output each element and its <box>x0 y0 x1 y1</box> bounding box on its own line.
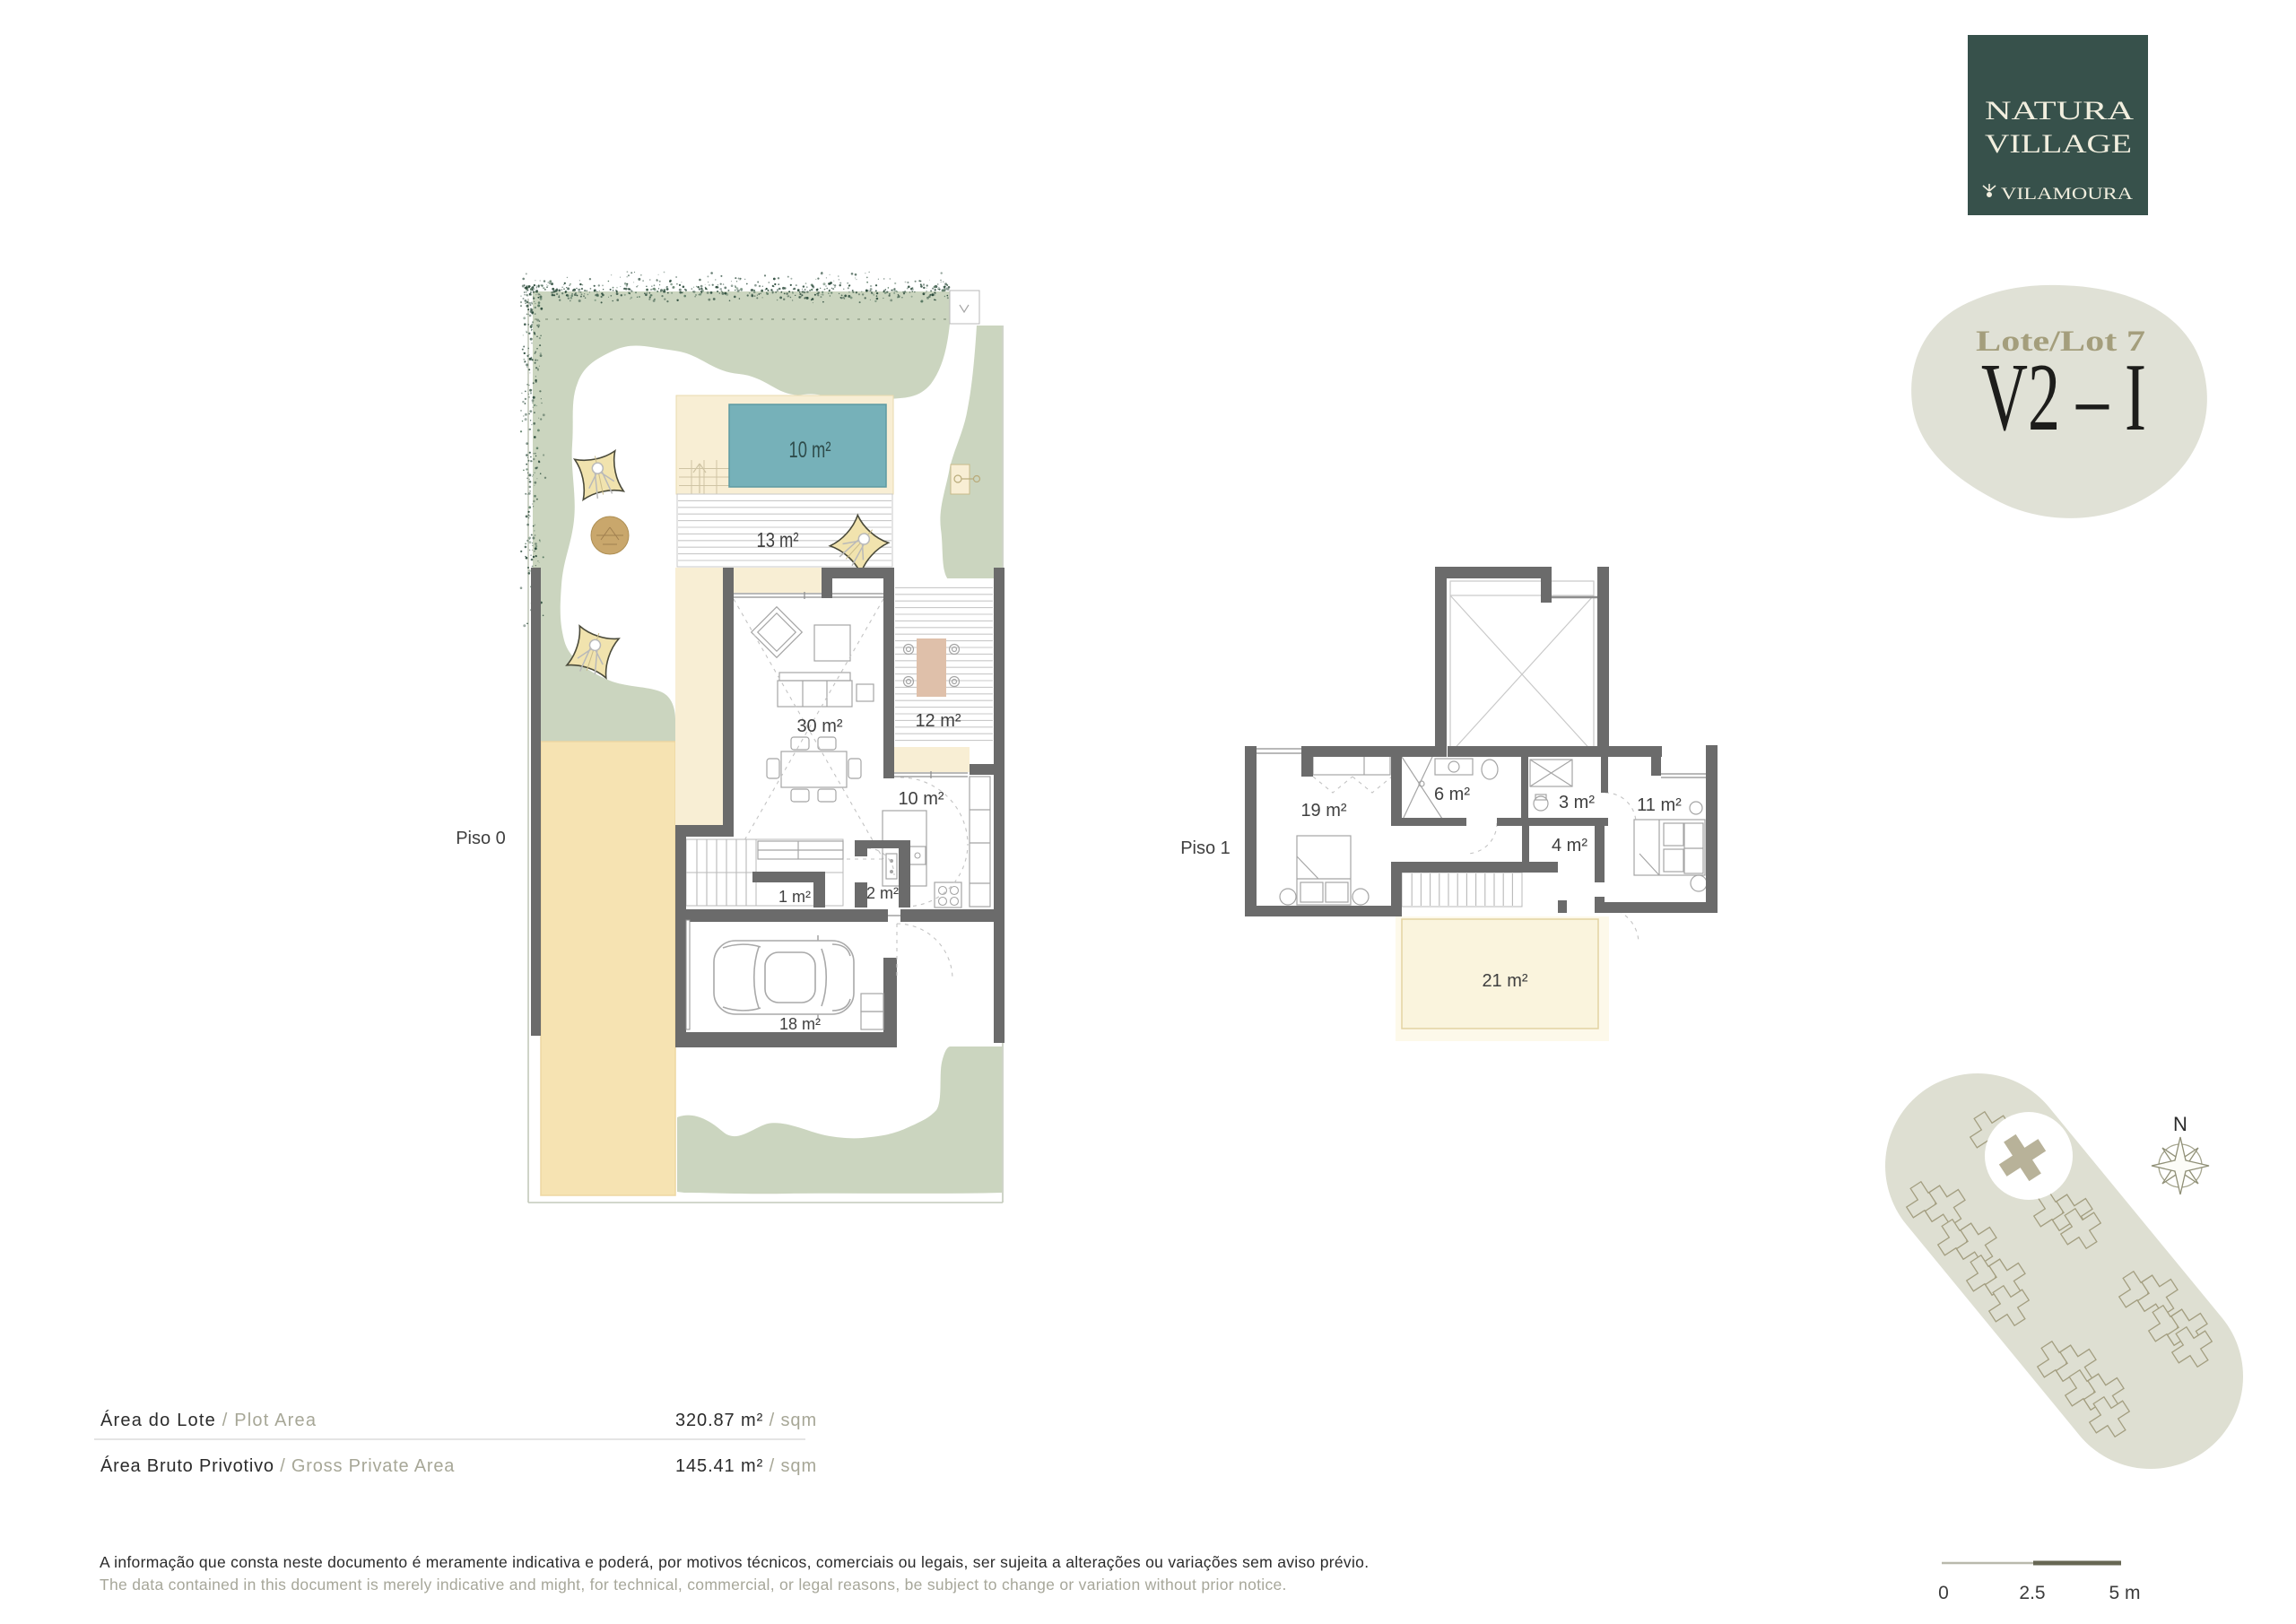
svg-text:VILLAGE: VILLAGE <box>1985 129 2132 159</box>
svg-text:Área do Lote / Plot Area: Área do Lote / Plot Area <box>100 1410 317 1430</box>
svg-text:The data contained in this doc: The data contained in this document is m… <box>100 1576 1287 1594</box>
svg-text:19 m²: 19 m² <box>1300 801 1346 821</box>
svg-text:V2 – I: V2 – I <box>1981 344 2146 451</box>
svg-text:Piso 1: Piso 1 <box>1180 838 1231 858</box>
svg-text:VILAMOURA: VILAMOURA <box>2001 185 2133 204</box>
svg-text:18 m²: 18 m² <box>779 1015 821 1033</box>
svg-text:NATURA: NATURA <box>1985 96 2134 126</box>
svg-text:N: N <box>2173 1113 2187 1135</box>
svg-text:13 m²: 13 m² <box>757 528 799 551</box>
svg-text:10 m²: 10 m² <box>789 438 831 463</box>
svg-text:10 m²: 10 m² <box>898 789 944 809</box>
svg-text:6 m²: 6 m² <box>1434 785 1470 804</box>
svg-text:0: 0 <box>1938 1583 1949 1603</box>
svg-text:2 m²: 2 m² <box>866 884 899 902</box>
svg-text:3 m²: 3 m² <box>1559 793 1595 812</box>
svg-text:1 m²: 1 m² <box>778 888 811 906</box>
svg-text:Área Bruto Privotivo / Gross P: Área Bruto Privotivo / Gross Private Are… <box>100 1455 455 1476</box>
svg-text:4 m²: 4 m² <box>1552 836 1587 855</box>
svg-text:Piso 0: Piso 0 <box>456 829 506 848</box>
svg-text:A informação que consta neste: A informação que consta neste documento … <box>100 1553 1369 1571</box>
svg-text:21 m²: 21 m² <box>1482 971 1527 991</box>
svg-text:2.5: 2.5 <box>2019 1583 2045 1603</box>
svg-text:30 m²: 30 m² <box>796 716 842 736</box>
svg-text:5 m: 5 m <box>2109 1583 2140 1603</box>
svg-text:12 m²: 12 m² <box>915 711 961 731</box>
svg-text:11 m²: 11 m² <box>1637 795 1682 815</box>
svg-text:145.41 m² / sqm: 145.41 m² / sqm <box>675 1456 817 1476</box>
svg-text:320.87 m² / sqm: 320.87 m² / sqm <box>675 1411 817 1430</box>
